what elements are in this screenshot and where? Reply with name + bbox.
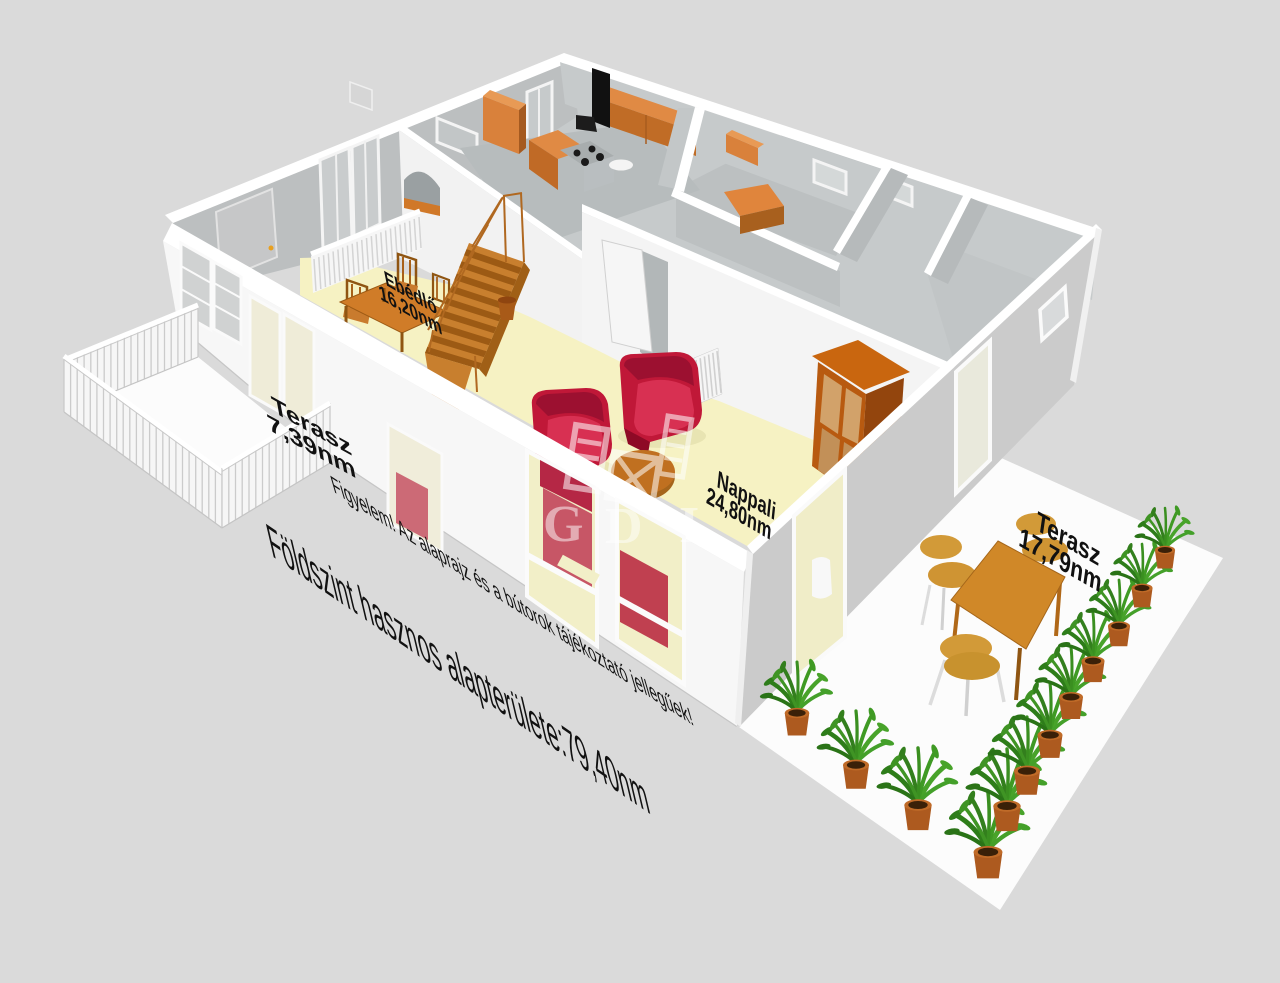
- svg-text:I: I: [679, 497, 699, 554]
- svg-text:G: G: [543, 496, 583, 553]
- svg-text:D: D: [605, 498, 643, 555]
